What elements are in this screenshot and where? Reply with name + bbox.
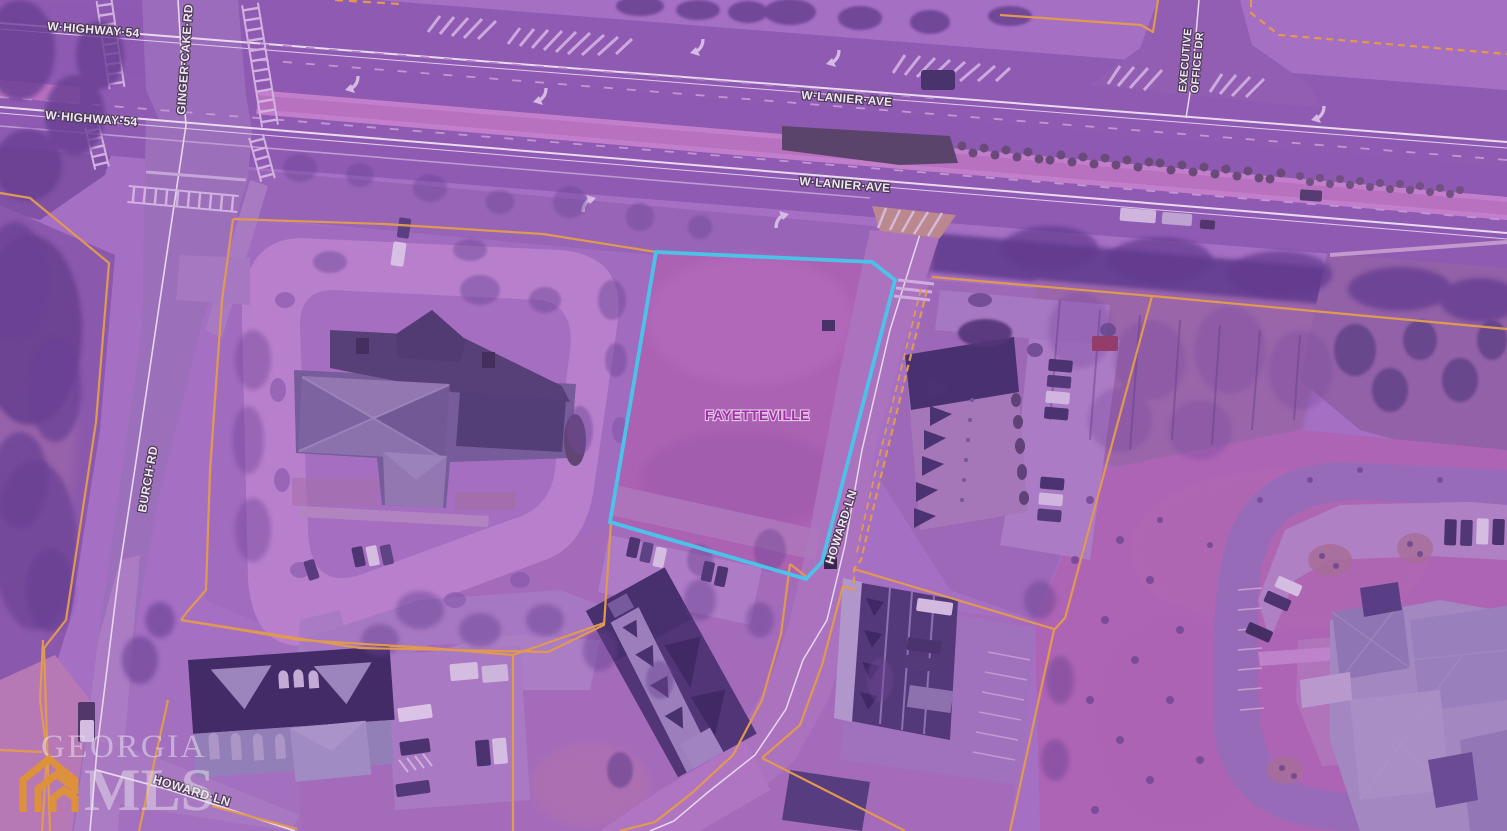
svg-text:MLS: MLS	[84, 757, 214, 823]
